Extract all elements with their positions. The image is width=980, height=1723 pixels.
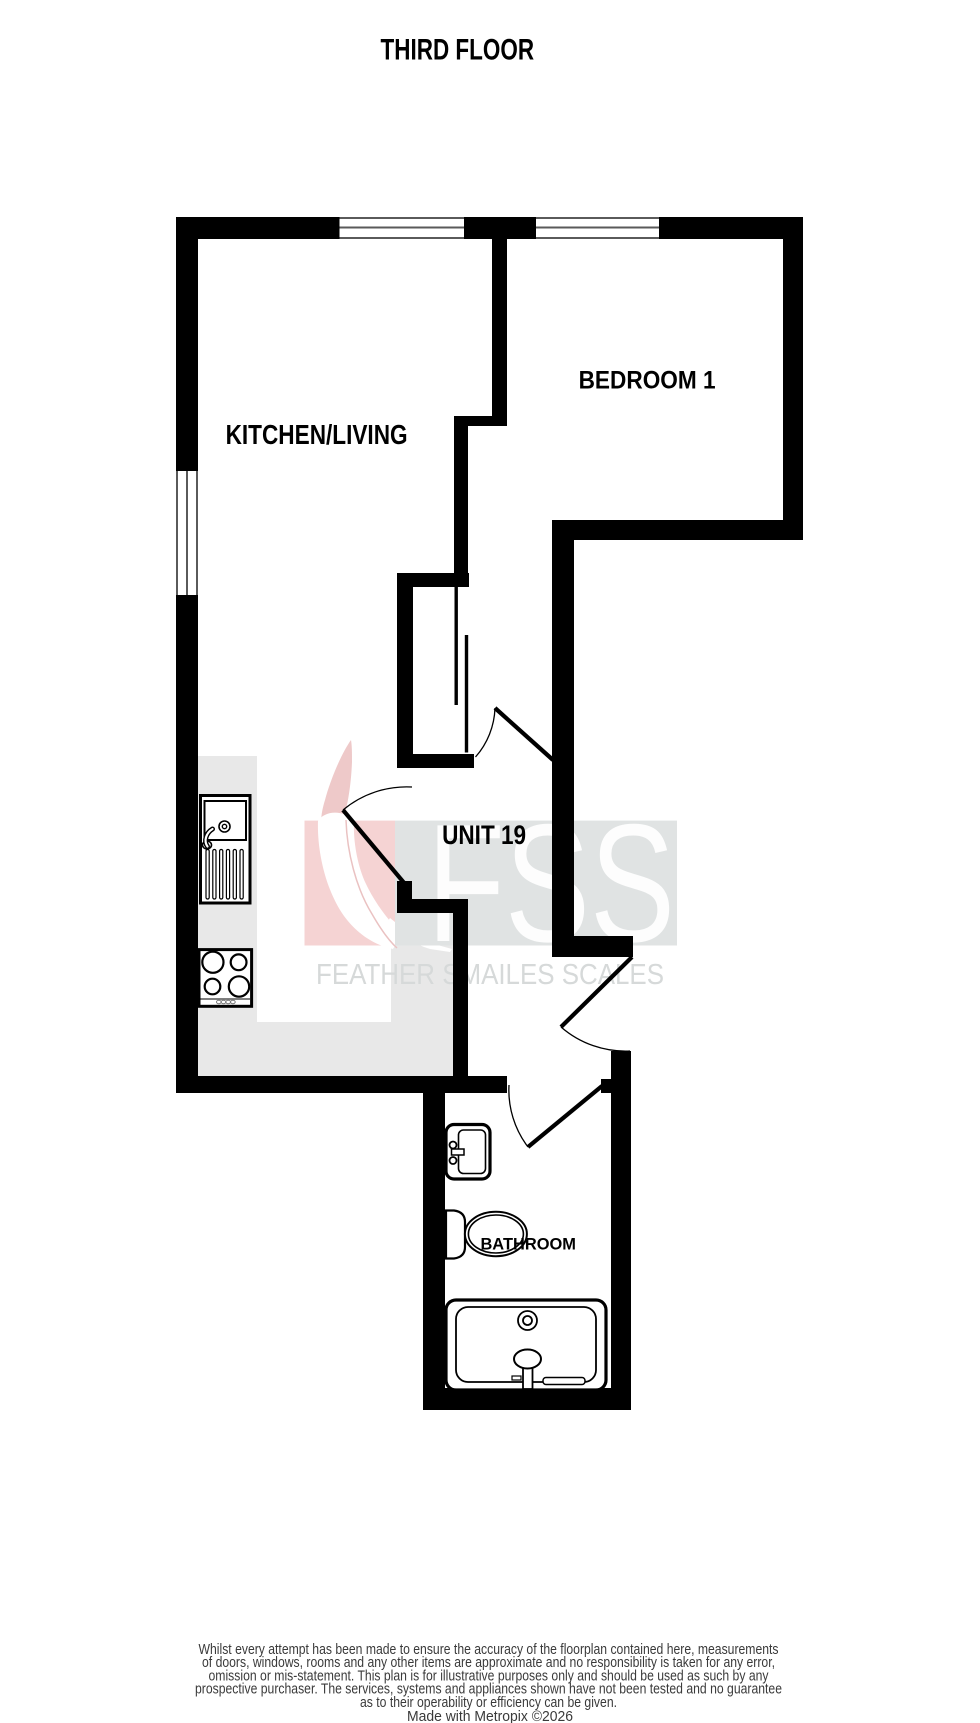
- svg-text:KITCHEN/LIVING: KITCHEN/LIVING: [226, 419, 408, 450]
- svg-text:Made with Metropix ©2026: Made with Metropix ©2026: [407, 1709, 573, 1723]
- svg-text:THIRD FLOOR: THIRD FLOOR: [381, 34, 535, 67]
- svg-text:BATHROOM: BATHROOM: [480, 1236, 576, 1254]
- svg-text:BEDROOM 1: BEDROOM 1: [579, 367, 716, 395]
- svg-text:UNIT 19: UNIT 19: [442, 820, 526, 850]
